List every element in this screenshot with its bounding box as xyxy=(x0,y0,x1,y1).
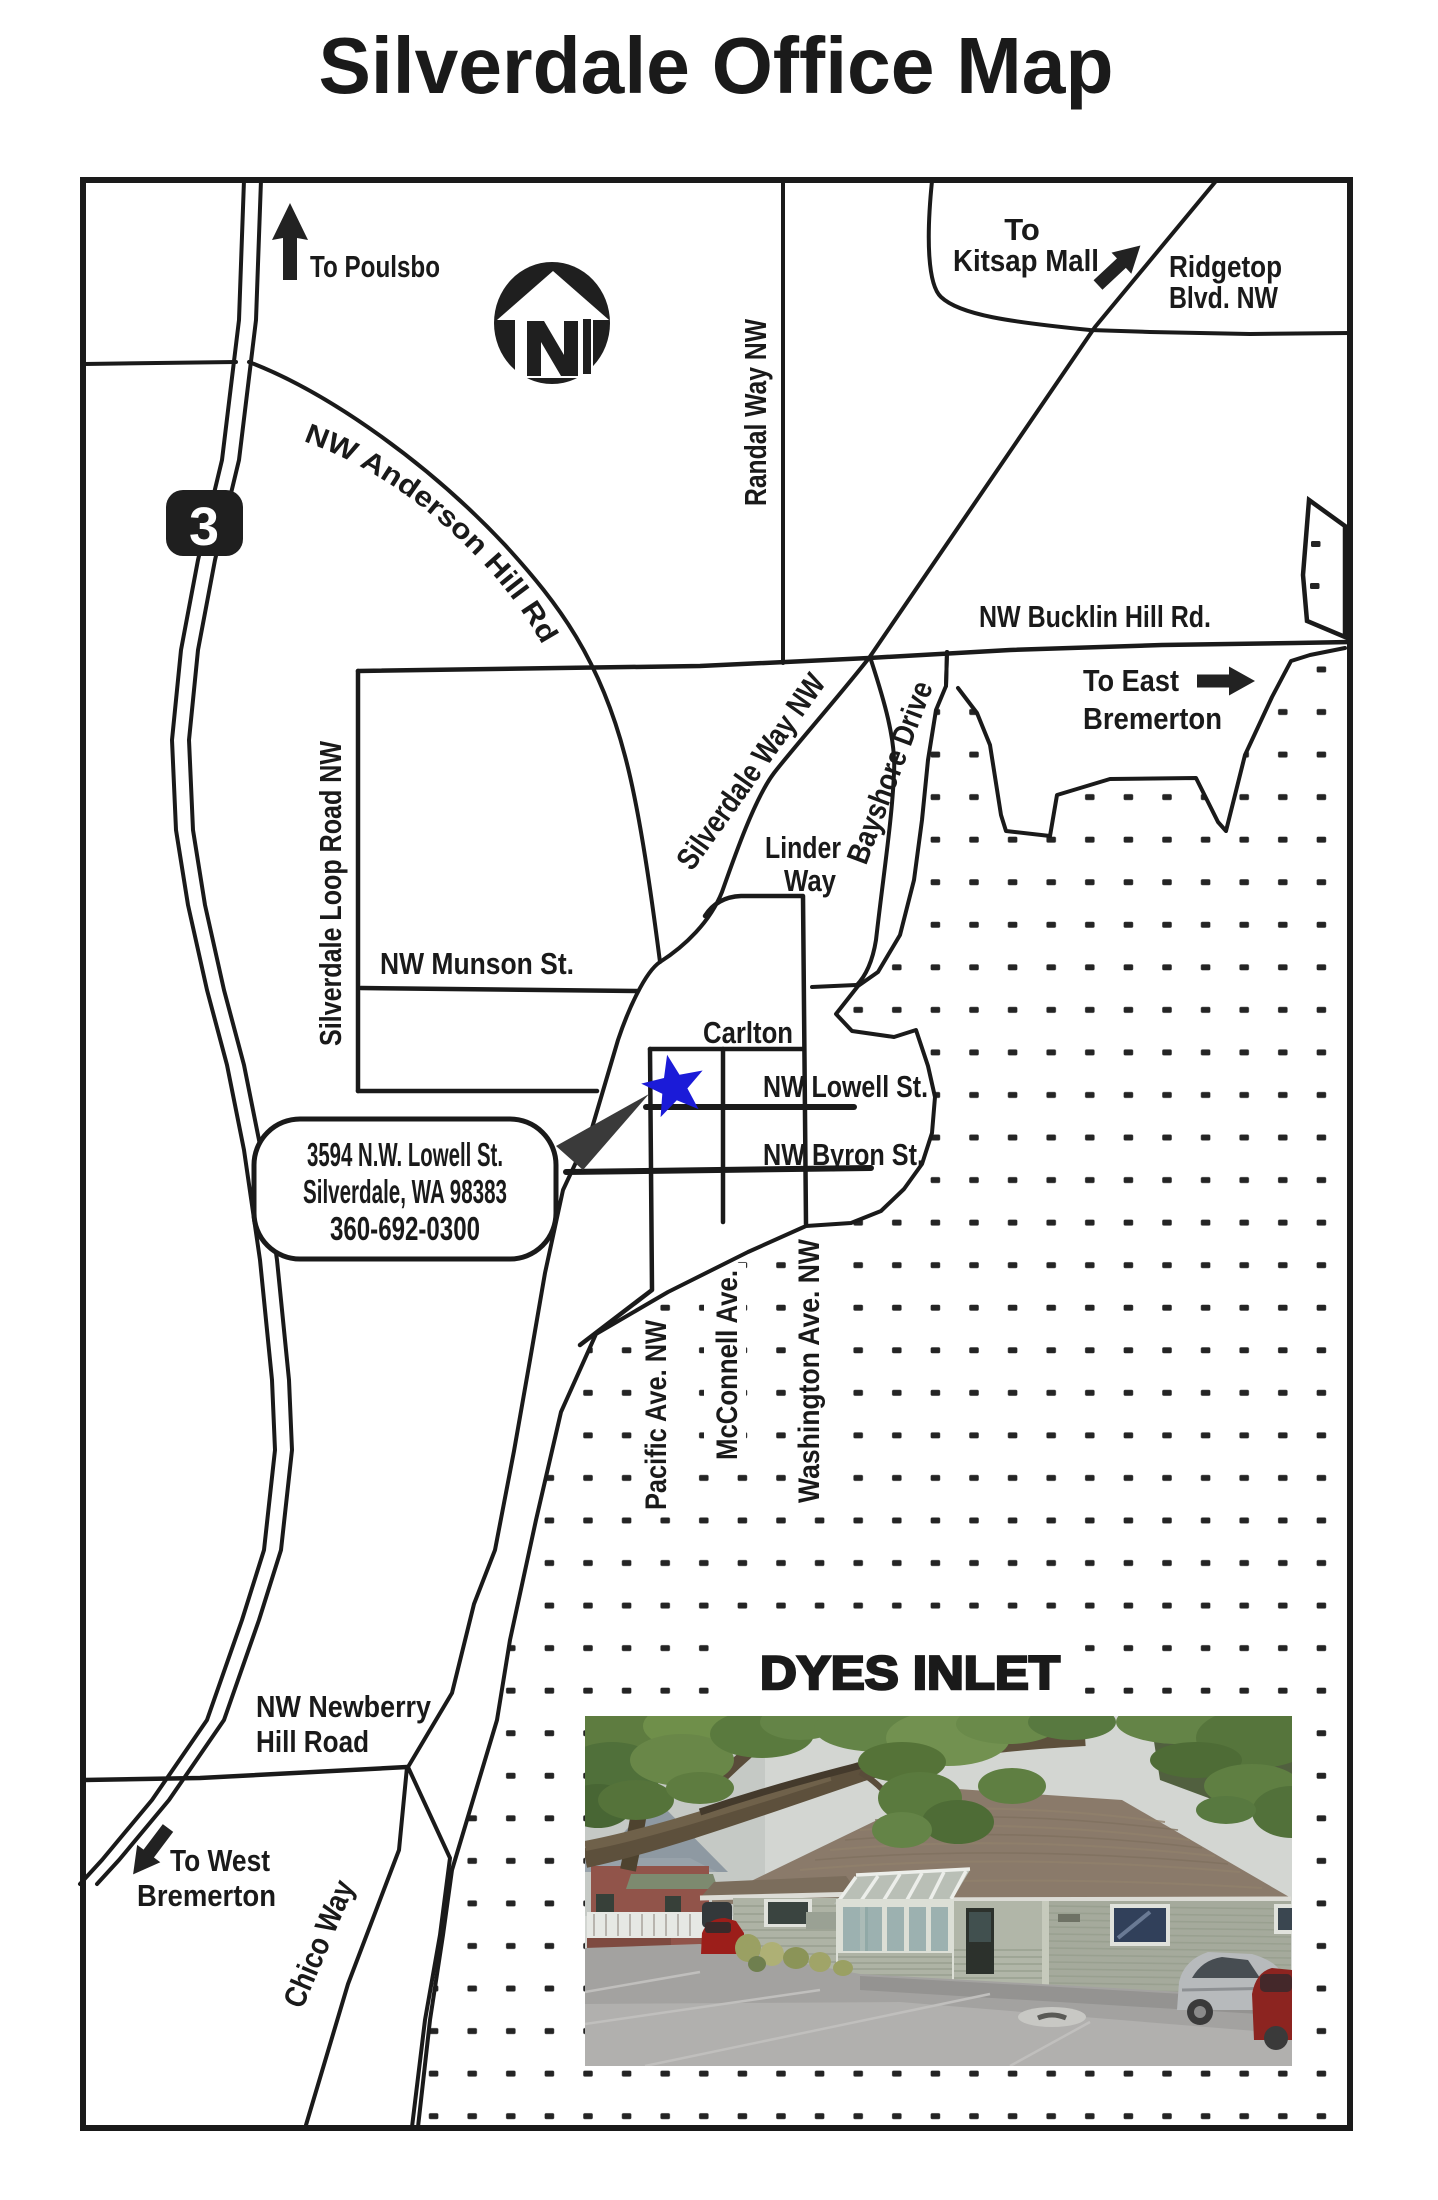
svg-text:Ridgetop: Ridgetop xyxy=(1169,249,1282,284)
svg-text:McConnell Ave.: McConnell Ave. xyxy=(711,1270,744,1460)
svg-text:Hill Road: Hill Road xyxy=(256,1724,369,1759)
svg-text:To East: To East xyxy=(1083,663,1179,698)
svg-text:Randal Way NW: Randal Way NW xyxy=(738,318,773,506)
svg-text:Carlton: Carlton xyxy=(703,1015,793,1050)
svg-text:Way: Way xyxy=(784,863,837,898)
svg-text:Silverdale Loop Road NW: Silverdale Loop Road NW xyxy=(313,740,348,1046)
svg-text:DYES INLET: DYES INLET xyxy=(760,1646,1060,1699)
svg-text:To West: To West xyxy=(170,1843,270,1878)
svg-text:Blvd. NW: Blvd. NW xyxy=(1169,280,1279,315)
svg-text:To Poulsbo: To Poulsbo xyxy=(310,249,440,284)
svg-text:Silverdale, WA 98383: Silverdale, WA 98383 xyxy=(303,1173,507,1210)
svg-text:Kitsap Mall: Kitsap Mall xyxy=(953,243,1099,278)
svg-text:NW Byron St.: NW Byron St. xyxy=(763,1137,924,1172)
svg-text:NW Bucklin Hill Rd.: NW Bucklin Hill Rd. xyxy=(979,599,1211,634)
svg-text:NW Munson St.: NW Munson St. xyxy=(380,946,574,981)
svg-text:3594 N.W. Lowell St.: 3594 N.W. Lowell St. xyxy=(307,1136,503,1173)
svg-text:To: To xyxy=(1004,212,1040,247)
svg-text:Linder: Linder xyxy=(765,830,841,865)
svg-text:3: 3 xyxy=(189,497,219,557)
svg-text:Pacific Ave. NW: Pacific Ave. NW xyxy=(640,1319,673,1510)
svg-text:NW Lowell St.: NW Lowell St. xyxy=(763,1069,928,1104)
svg-text:360-692-0300: 360-692-0300 xyxy=(330,1210,480,1247)
svg-text:Bremerton: Bremerton xyxy=(137,1878,276,1913)
svg-text:Washington Ave. NW: Washington Ave. NW xyxy=(793,1238,826,1503)
svg-text:Bremerton: Bremerton xyxy=(1083,701,1222,736)
svg-text:NW Newberry: NW Newberry xyxy=(256,1689,432,1724)
svg-text:Silverdale Office Map: Silverdale Office Map xyxy=(319,21,1114,110)
